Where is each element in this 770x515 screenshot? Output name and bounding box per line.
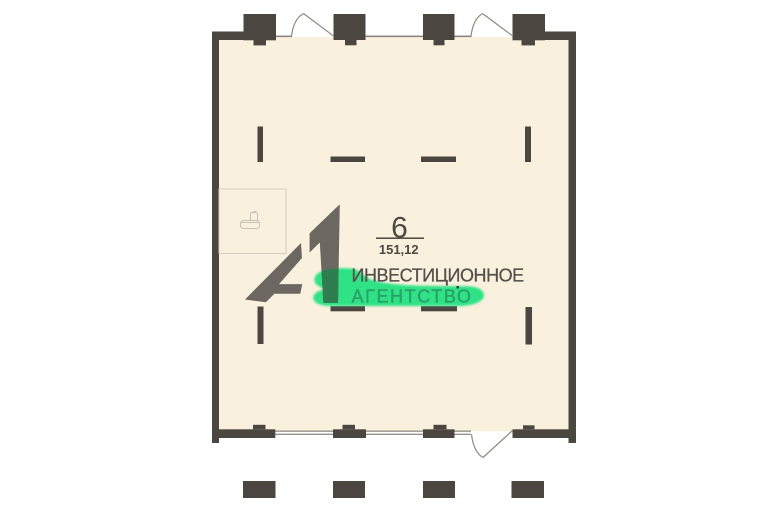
svg-text:6: 6 (391, 212, 408, 245)
svg-text:151,12: 151,12 (379, 242, 419, 257)
svg-text:ИНВЕСТИЦИОННОЕ: ИНВЕСТИЦИОННОЕ (352, 266, 525, 286)
svg-text:АГЕНТСТВО: АГЕНТСТВО (352, 286, 473, 306)
